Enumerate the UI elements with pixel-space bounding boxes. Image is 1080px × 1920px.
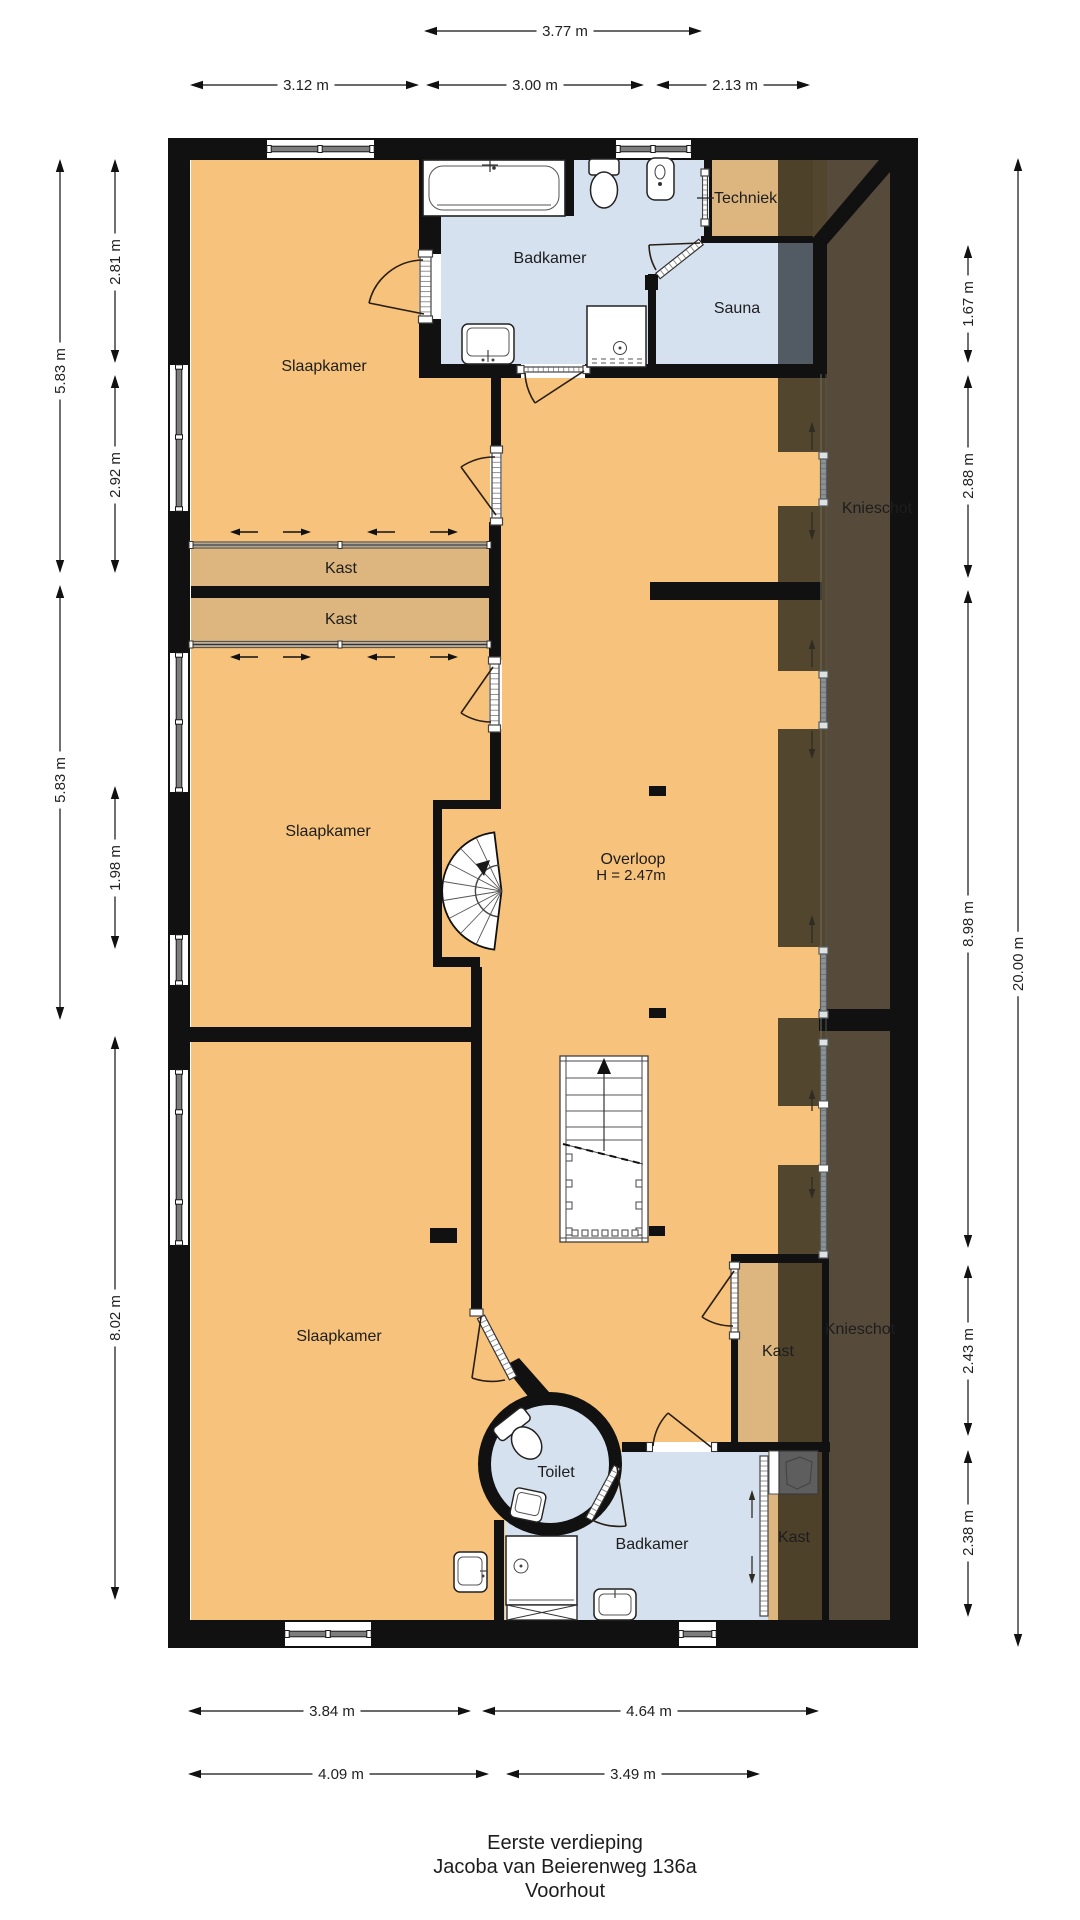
svg-text:20.00 m: 20.00 m: [1010, 937, 1027, 991]
svg-text:Toilet: Toilet: [537, 1464, 575, 1481]
svg-text:Kast: Kast: [762, 1343, 795, 1360]
svg-text:4.64 m: 4.64 m: [626, 1703, 672, 1720]
svg-text:Techniek: Techniek: [714, 190, 778, 207]
svg-text:Kast: Kast: [325, 560, 358, 577]
svg-text:2.88 m: 2.88 m: [960, 453, 977, 499]
svg-text:Voorhout: Voorhout: [525, 1880, 606, 1902]
svg-text:2.38 m: 2.38 m: [960, 1510, 977, 1556]
svg-text:Knieschot: Knieschot: [825, 1321, 896, 1338]
svg-text:3.12 m: 3.12 m: [283, 77, 329, 94]
svg-text:5.83 m: 5.83 m: [52, 348, 69, 394]
svg-text:Kast: Kast: [778, 1529, 811, 1546]
svg-text:Jacoba van Beierenweg 136a: Jacoba van Beierenweg 136a: [433, 1856, 697, 1878]
svg-text:3.00 m: 3.00 m: [512, 77, 558, 94]
svg-text:2.13 m: 2.13 m: [712, 77, 758, 94]
svg-text:8.02 m: 8.02 m: [107, 1295, 124, 1341]
svg-text:Kast: Kast: [325, 611, 358, 628]
svg-text:Slaapkamer: Slaapkamer: [285, 823, 371, 840]
svg-text:Badkamer: Badkamer: [514, 250, 588, 267]
svg-text:H = 2.47m: H = 2.47m: [596, 867, 666, 884]
svg-text:Knieschot: Knieschot: [842, 500, 913, 517]
svg-text:2.43 m: 2.43 m: [960, 1328, 977, 1374]
svg-text:2.81 m: 2.81 m: [107, 239, 124, 285]
svg-text:Eerste verdieping: Eerste verdieping: [487, 1832, 643, 1854]
svg-text:Slaapkamer: Slaapkamer: [296, 1328, 382, 1345]
svg-text:4.09 m: 4.09 m: [318, 1766, 364, 1783]
svg-text:1.67 m: 1.67 m: [960, 281, 977, 327]
svg-text:Sauna: Sauna: [714, 300, 760, 317]
svg-text:Slaapkamer: Slaapkamer: [281, 358, 367, 375]
svg-text:3.77 m: 3.77 m: [542, 23, 588, 40]
svg-text:5.83 m: 5.83 m: [52, 757, 69, 803]
svg-text:Overloop: Overloop: [601, 851, 666, 868]
svg-text:1.98 m: 1.98 m: [107, 845, 124, 891]
svg-text:2.92 m: 2.92 m: [107, 452, 124, 498]
svg-text:3.84 m: 3.84 m: [309, 1703, 355, 1720]
svg-text:3.49 m: 3.49 m: [610, 1766, 656, 1783]
svg-text:8.98 m: 8.98 m: [960, 901, 977, 947]
svg-text:Badkamer: Badkamer: [616, 1536, 690, 1553]
